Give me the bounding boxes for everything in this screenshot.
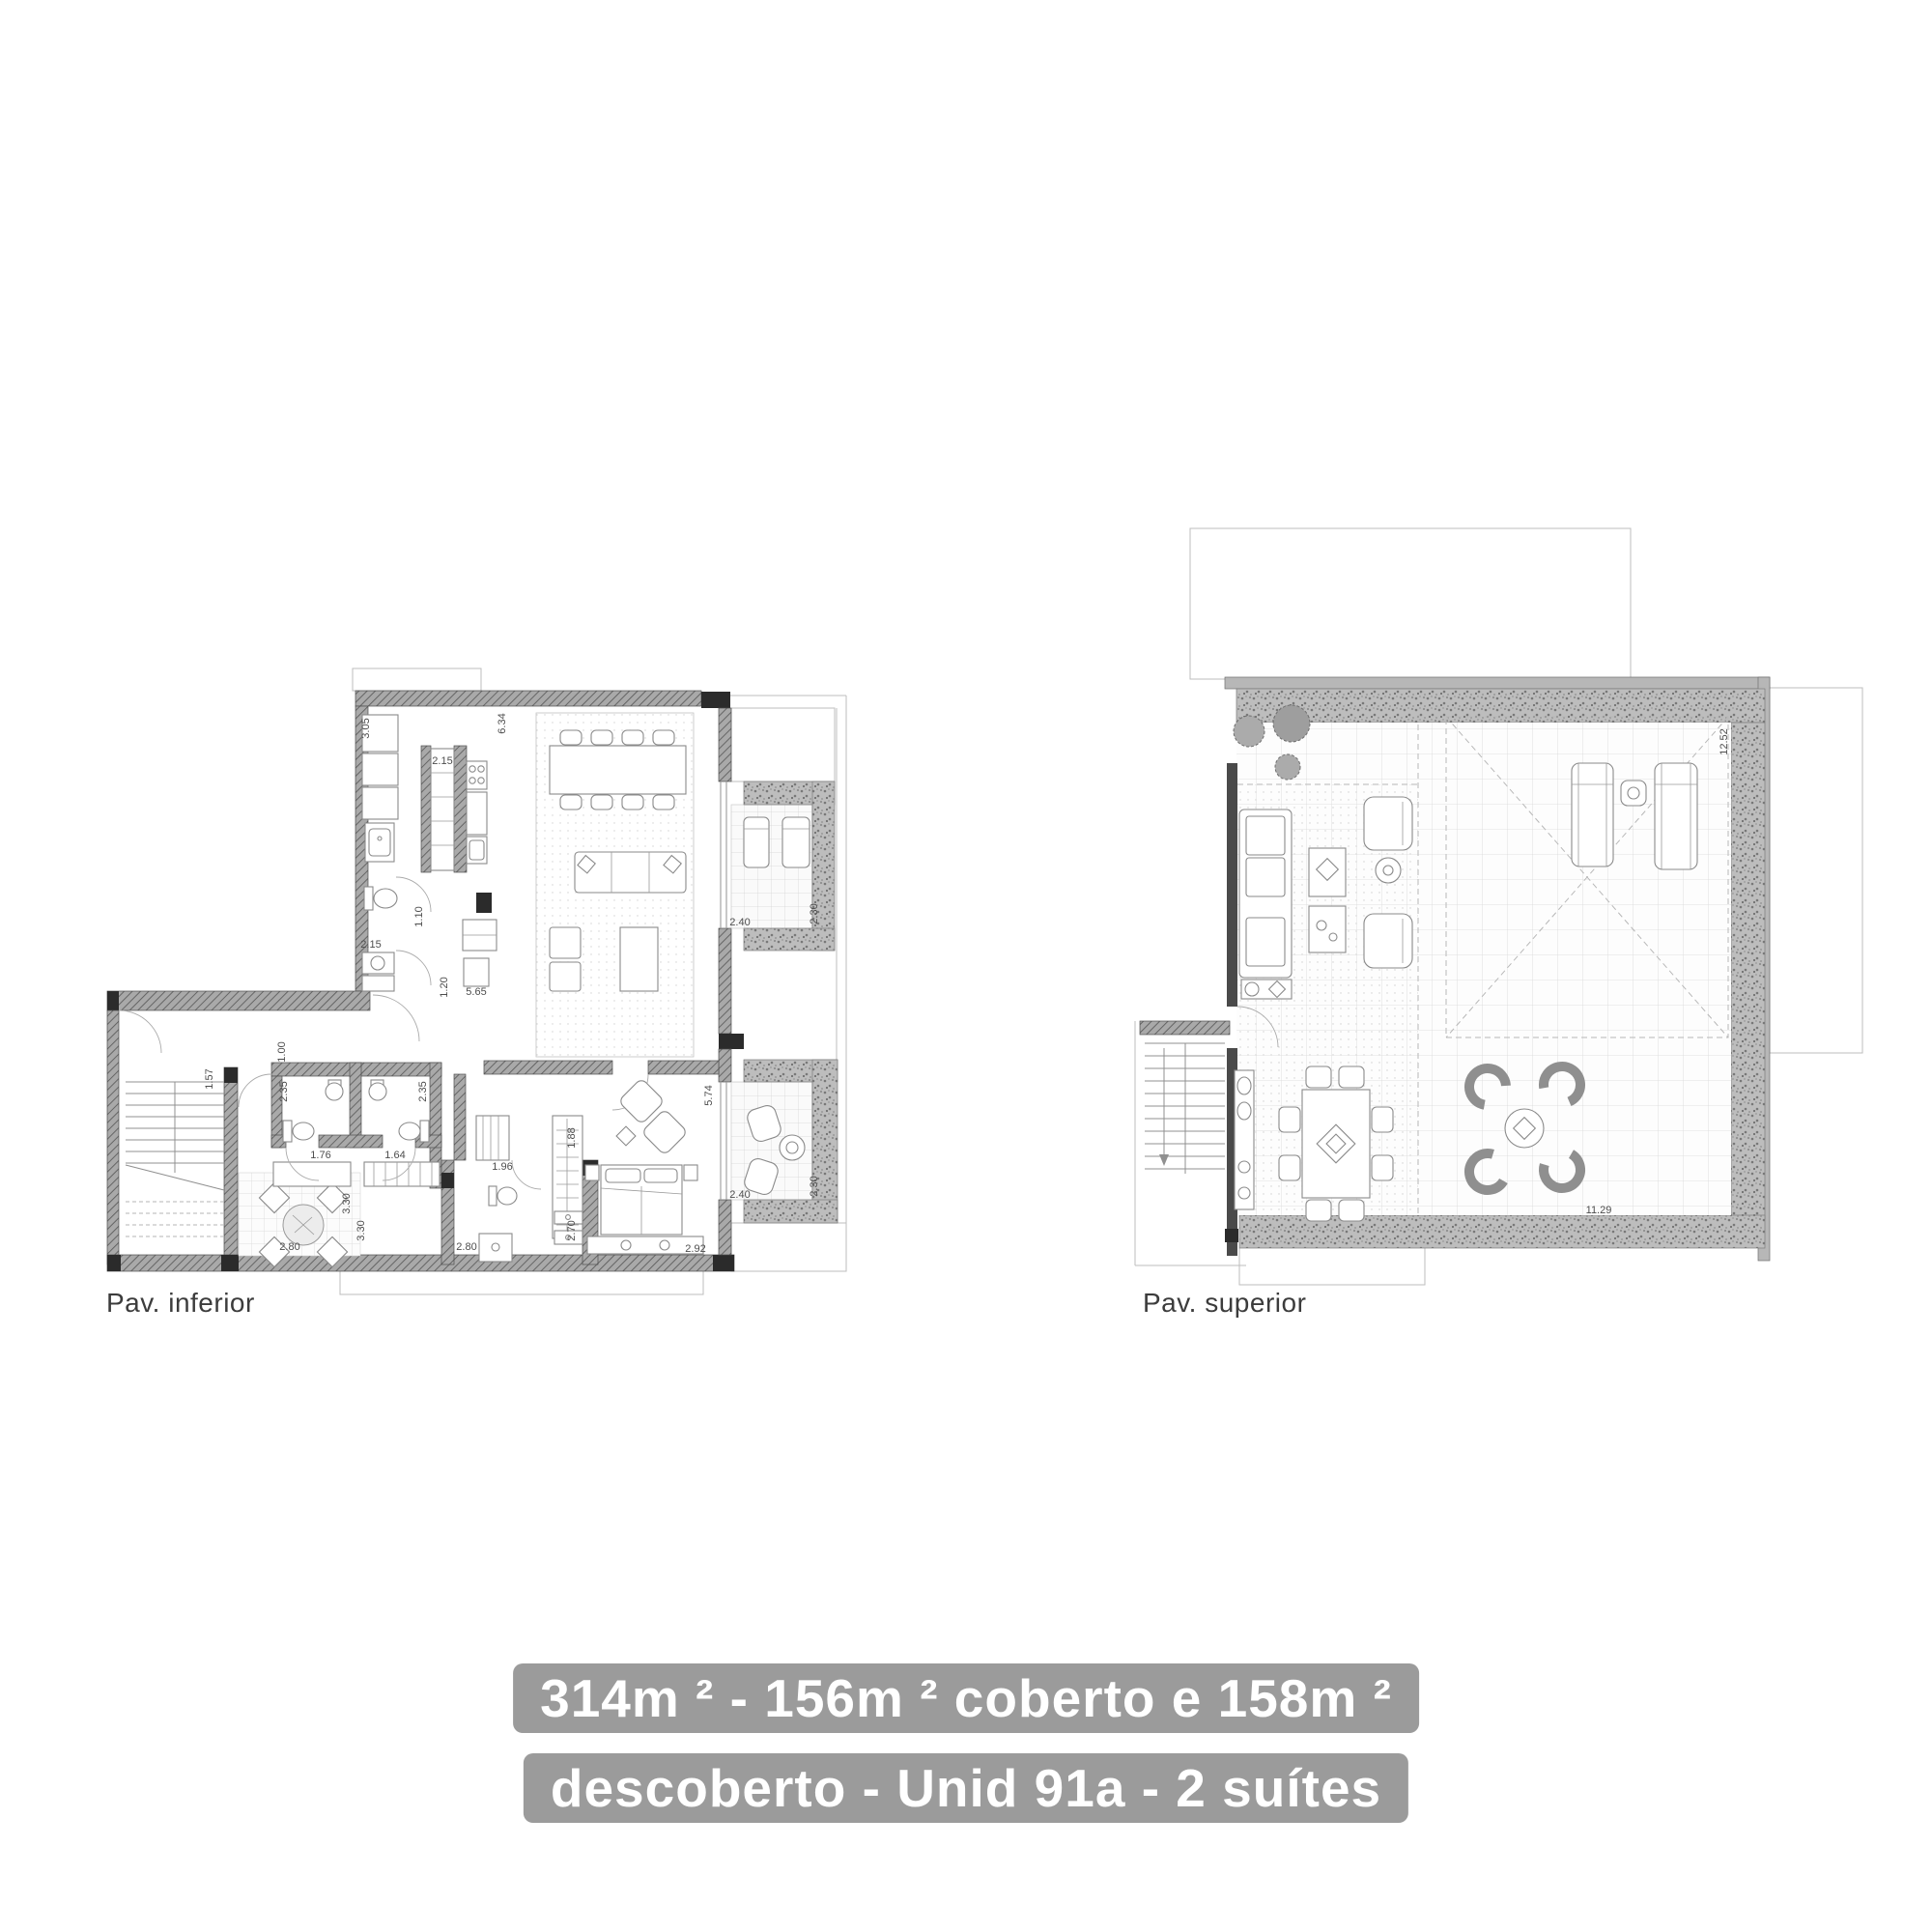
armchair xyxy=(1364,914,1412,968)
staircase xyxy=(126,1082,224,1236)
balcony-chair xyxy=(782,817,810,867)
dim-label: 6.34 xyxy=(497,713,508,733)
floor-plan-inferior: 3.05 2.15 6.34 1.10 2.15 1.20 5.65 1.57 … xyxy=(77,638,869,1314)
sideboard xyxy=(273,1162,351,1186)
coffee-table xyxy=(1309,848,1346,896)
dim-label: 1.88 xyxy=(566,1127,578,1148)
pouf xyxy=(550,927,581,958)
dim-label: 1.76 xyxy=(310,1150,330,1161)
dim-label: 3.30 xyxy=(341,1193,353,1213)
plant xyxy=(1275,754,1300,780)
sofa xyxy=(1239,810,1292,978)
dim-label: 11.29 xyxy=(1586,1205,1612,1216)
dim-label: 1.00 xyxy=(276,1041,288,1062)
dim-label: 2.80 xyxy=(279,1241,299,1253)
dim-label: 2.15 xyxy=(360,939,381,951)
dim-label: 2.35 xyxy=(417,1081,429,1101)
dining-table xyxy=(1302,1090,1370,1198)
dim-label: 1.96 xyxy=(492,1161,512,1173)
dim-label: 1.10 xyxy=(413,906,425,926)
side-table xyxy=(780,1135,805,1160)
dim-label: 1.57 xyxy=(204,1068,215,1089)
sun-lounger xyxy=(1572,763,1613,867)
dim-label: 2.40 xyxy=(729,917,750,928)
side-table xyxy=(1376,858,1401,883)
balcony-chair xyxy=(744,817,769,867)
side-table xyxy=(1621,781,1646,806)
dim-label: 2.40 xyxy=(729,1189,750,1201)
dim-label: 5.65 xyxy=(466,986,486,998)
nightstand xyxy=(684,1165,697,1180)
coffee-table xyxy=(620,927,658,991)
staircase xyxy=(1145,1043,1225,1174)
dim-label: 1.64 xyxy=(384,1150,405,1161)
dim-label: 2.92 xyxy=(685,1243,705,1255)
round-table xyxy=(1505,1109,1544,1148)
dim-label: 3.30 xyxy=(355,1220,367,1240)
console xyxy=(1241,980,1292,999)
caption-line-1: 314m ² - 156m ² coberto e 158m ² xyxy=(513,1663,1419,1733)
floor-plan-superior: 12.52 11.29 xyxy=(1130,522,1874,1294)
dim-label: 1.20 xyxy=(439,977,450,997)
coffee-table xyxy=(1309,906,1346,952)
wardrobe xyxy=(476,1116,509,1160)
sideboard xyxy=(1235,1070,1254,1209)
dim-label: 2.35 xyxy=(278,1081,290,1101)
dim-label: 2.30 xyxy=(809,903,820,923)
dining-table xyxy=(550,746,686,794)
dim-label: 2.70 xyxy=(566,1220,578,1240)
plan-label-superior: Pav. superior xyxy=(1143,1288,1306,1319)
pouf xyxy=(550,962,581,991)
planter-strip xyxy=(1731,723,1765,1219)
living-room xyxy=(536,713,694,1110)
dim-label: 12.52 xyxy=(1719,728,1730,755)
dim-label: 2.80 xyxy=(456,1241,476,1253)
dim-label: 5.74 xyxy=(703,1085,715,1105)
plant xyxy=(1273,705,1310,742)
plan-label-inferior: Pav. inferior xyxy=(106,1288,255,1319)
planter-strip xyxy=(1236,689,1765,723)
dim-label: 2.30 xyxy=(809,1176,820,1196)
dim-label: 3.05 xyxy=(360,718,372,738)
nightstand xyxy=(585,1165,599,1180)
armchair xyxy=(1364,797,1412,850)
dim-label: 2.15 xyxy=(432,755,452,767)
caption-line-2: descoberto - Unid 91a - 2 suítes xyxy=(524,1753,1408,1823)
plant xyxy=(1234,716,1264,747)
